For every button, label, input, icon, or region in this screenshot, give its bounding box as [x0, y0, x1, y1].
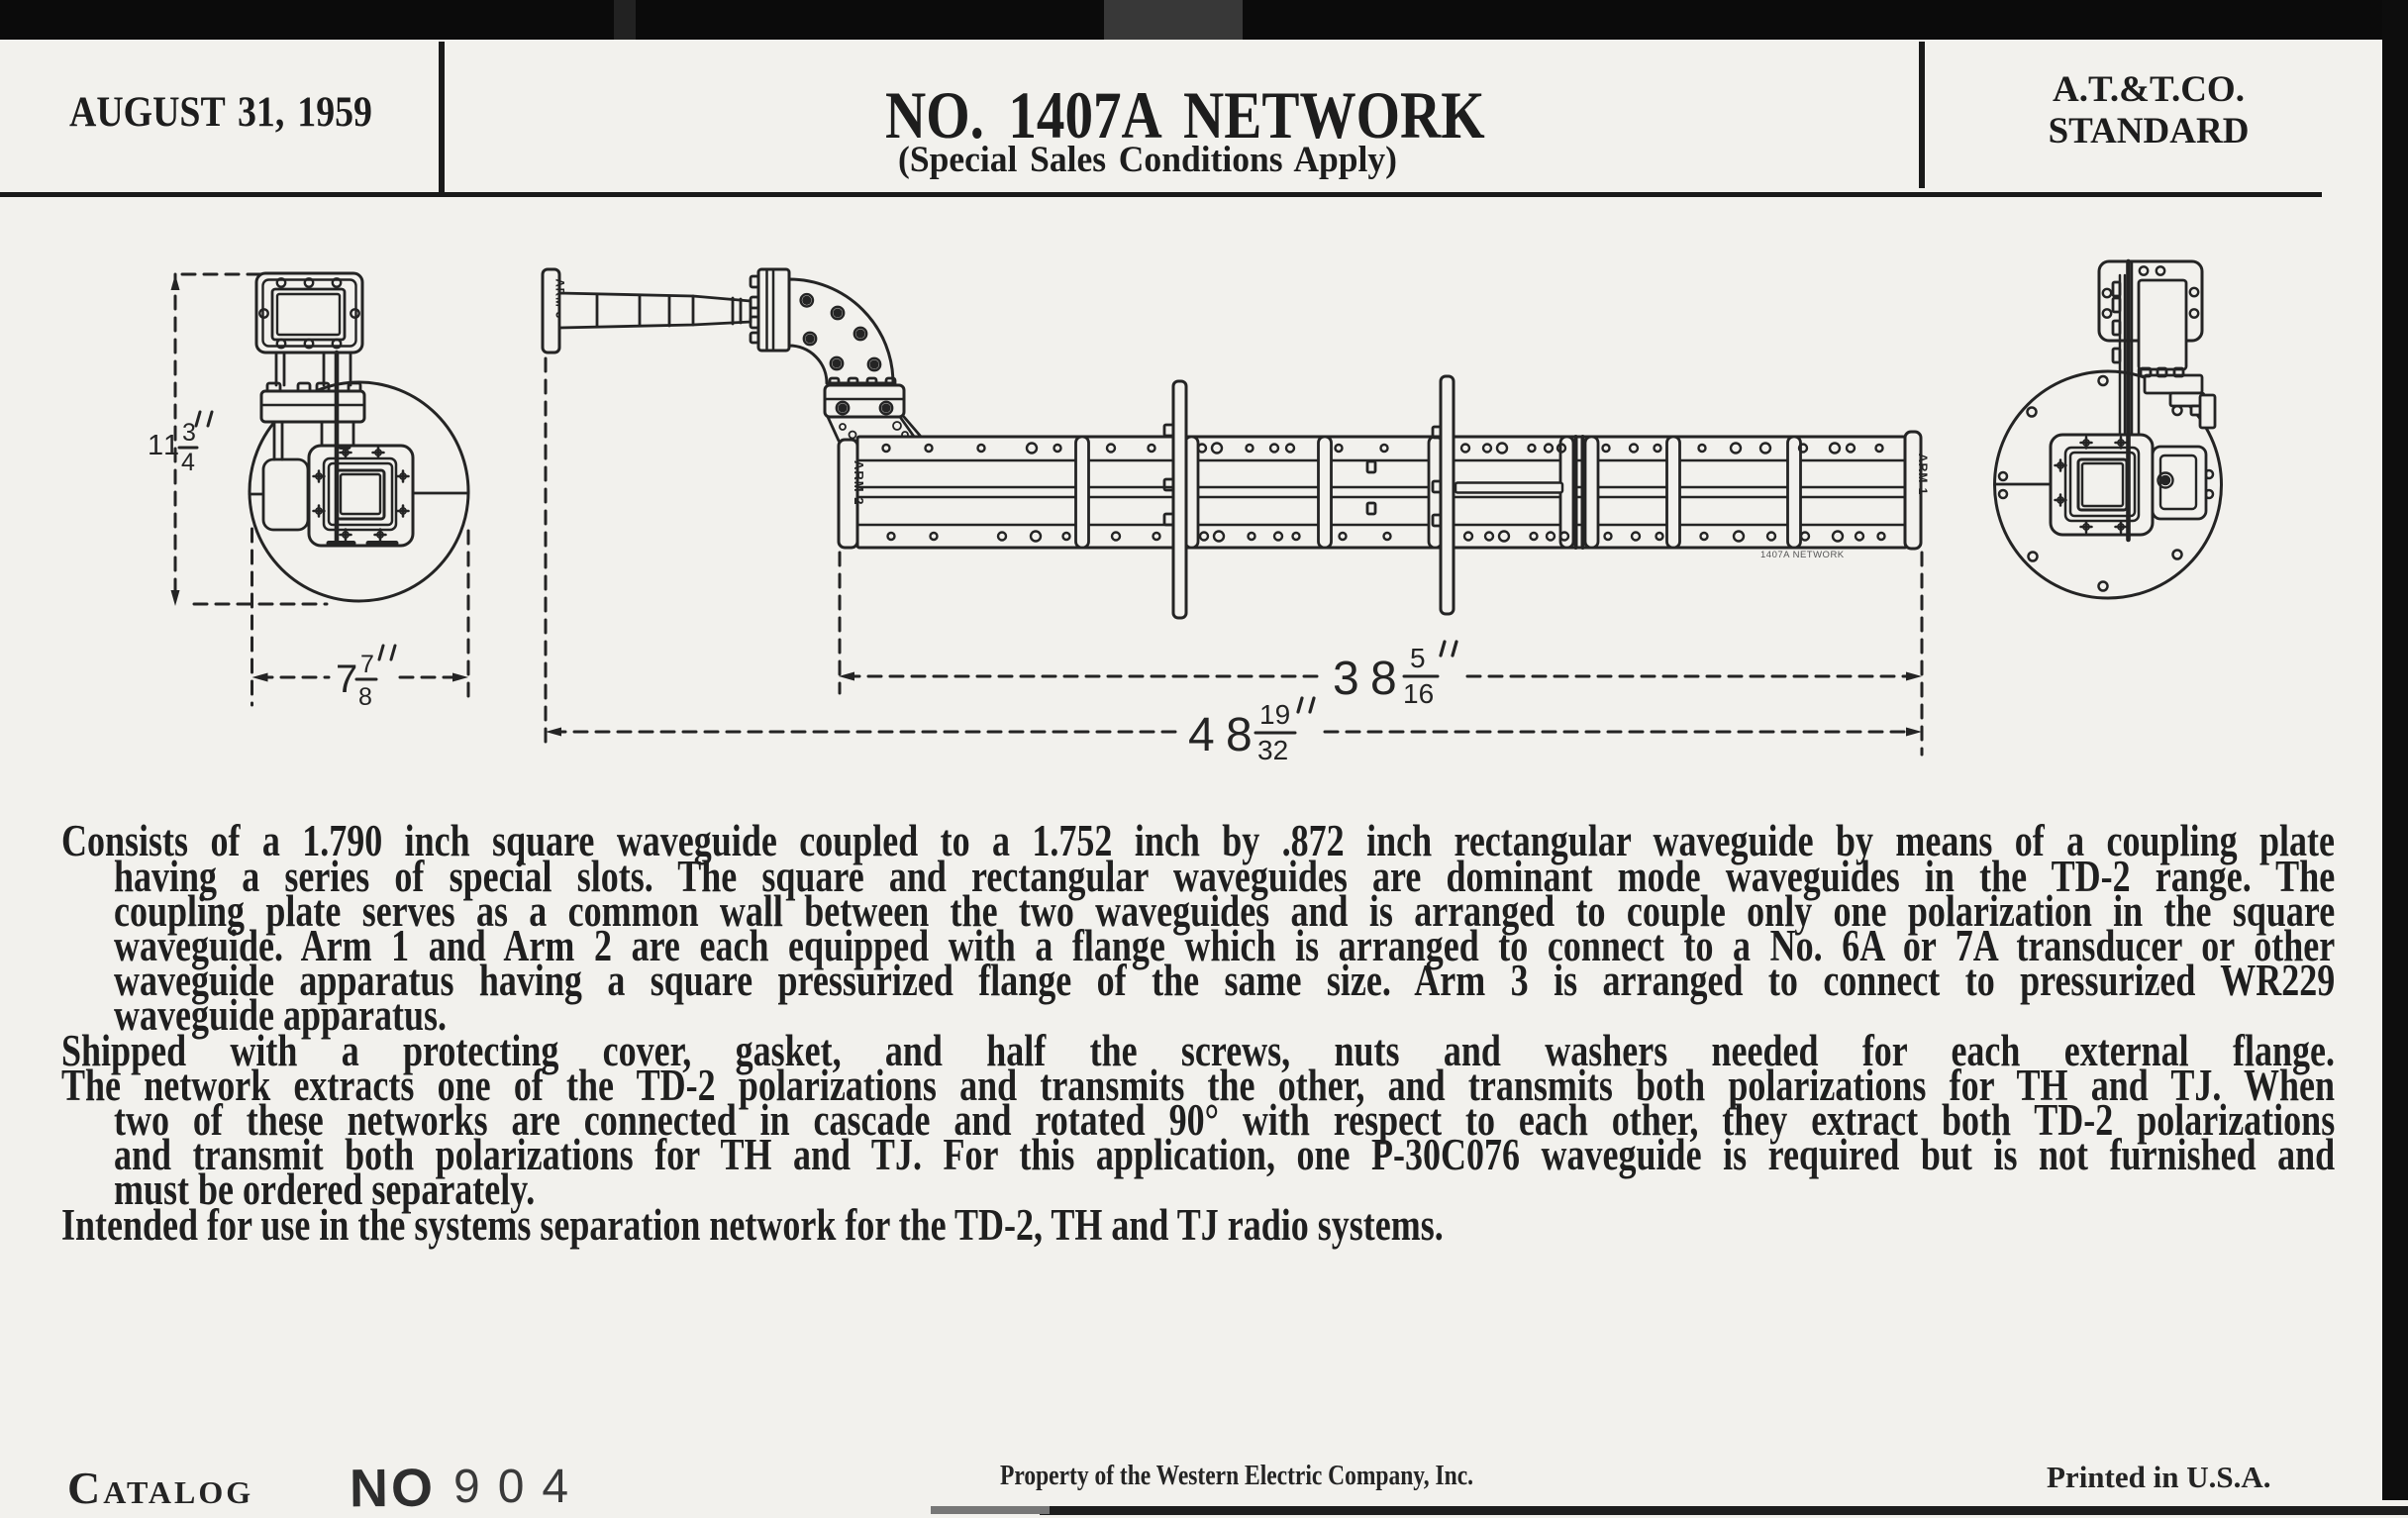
- svg-text:19: 19: [1259, 699, 1290, 730]
- svg-text:7: 7: [336, 658, 357, 701]
- svg-text:3: 3: [182, 419, 196, 447]
- svg-text:16: 16: [1403, 678, 1434, 709]
- svg-text:ARM 2: ARM 2: [852, 460, 866, 505]
- svg-text:4: 4: [181, 449, 195, 476]
- svg-text:4: 4: [1188, 709, 1215, 761]
- svg-text:8: 8: [1226, 709, 1253, 761]
- svg-text:32: 32: [1257, 735, 1288, 765]
- svg-text:8: 8: [1370, 653, 1397, 705]
- svg-text:1407A NETWORK: 1407A NETWORK: [1760, 550, 1845, 560]
- svg-text:11: 11: [148, 430, 181, 461]
- svg-text:5: 5: [1410, 643, 1426, 673]
- svg-text:8: 8: [358, 683, 372, 711]
- svg-text:3: 3: [1333, 653, 1359, 705]
- svg-text:ARM 1: ARM 1: [1916, 454, 1930, 495]
- svg-text:7: 7: [360, 651, 374, 678]
